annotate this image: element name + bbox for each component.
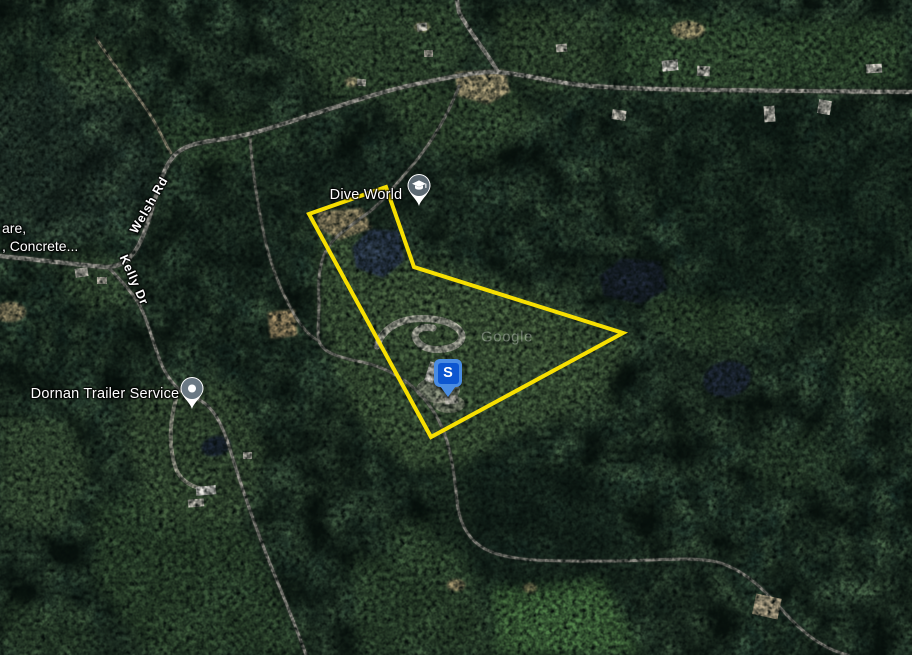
truncated-poi-label: are, , Concrete... [2,219,78,255]
subject-marker-tail [440,386,456,397]
truncated-poi-label-line2: , Concrete... [2,237,78,255]
map-viewport[interactable]: Google Welsh Rd Kelly Dr are, , Concrete… [0,0,912,655]
google-watermark: Google [481,329,533,346]
poi-label-dive-world[interactable]: Dive World [330,187,403,203]
satellite-imagery [0,0,912,655]
subject-marker-label: S [438,363,459,384]
truncated-poi-label-line1: are, [2,219,78,237]
poi-label-dornan-trailer-service[interactable]: Dornan Trailer Service [31,386,180,402]
subject-marker-head: S [434,359,462,387]
poi-dot-pin-icon[interactable] [176,374,208,410]
subject-property-marker[interactable]: S [434,359,462,397]
education-pin-icon[interactable] [403,171,435,207]
